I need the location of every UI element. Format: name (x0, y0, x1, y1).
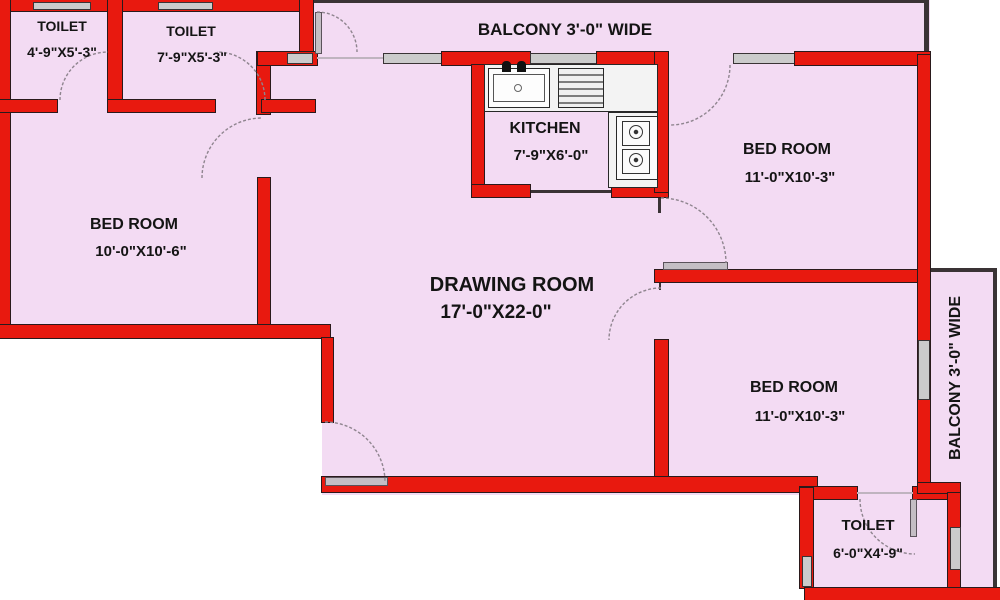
bedroom-bottom-right-dims: 11'-0"X10'-3" (755, 409, 846, 424)
kitchen-dims: 7'-9"X6'-0" (514, 148, 589, 163)
door-arc-bedroom2 (609, 288, 661, 340)
kitchen-label: KITCHEN (509, 121, 580, 137)
bedroom-top-right-dims: 11'-0"X10'-3" (745, 170, 836, 185)
bedroom-top-right-label: BED ROOM (743, 142, 831, 158)
toilet2-label: TOILET (166, 24, 216, 38)
right-balcony-label: BALCONY 3'-0" WIDE (948, 296, 964, 460)
door-arc-bedroom1 (661, 198, 726, 263)
door-arc-balcony (317, 12, 357, 52)
toilet3-label: TOILET (841, 518, 894, 533)
drawing-room-label: DRAWING ROOM (430, 275, 594, 295)
door-arc-bedroom1-balcony (670, 65, 730, 125)
door-arc-entrance (325, 422, 385, 482)
door-arc-left-bedroom (202, 118, 262, 178)
toilet1-dims: 4'-9"X5'-3" (27, 45, 97, 59)
bedroom-left-label: BED ROOM (90, 217, 178, 233)
floor-plan: TOILET 4'-9"X5'-3" TOILET 7'-9"X5'-3" BA… (0, 0, 1000, 600)
toilet1-label: TOILET (37, 19, 87, 33)
toilet2-dims: 7'-9"X5'-3" (157, 50, 227, 64)
bedroom-bottom-right-label: BED ROOM (750, 380, 838, 396)
door-arcs-layer (0, 0, 1000, 600)
top-balcony-label: BALCONY 3'-0" WIDE (478, 21, 652, 38)
drawing-room-dims: 17'-0"X22-0" (440, 303, 551, 322)
bedroom-left-dims: 10'-0"X10'-6" (95, 244, 186, 259)
toilet3-dims: 6'-0"X4'-9" (833, 546, 903, 560)
